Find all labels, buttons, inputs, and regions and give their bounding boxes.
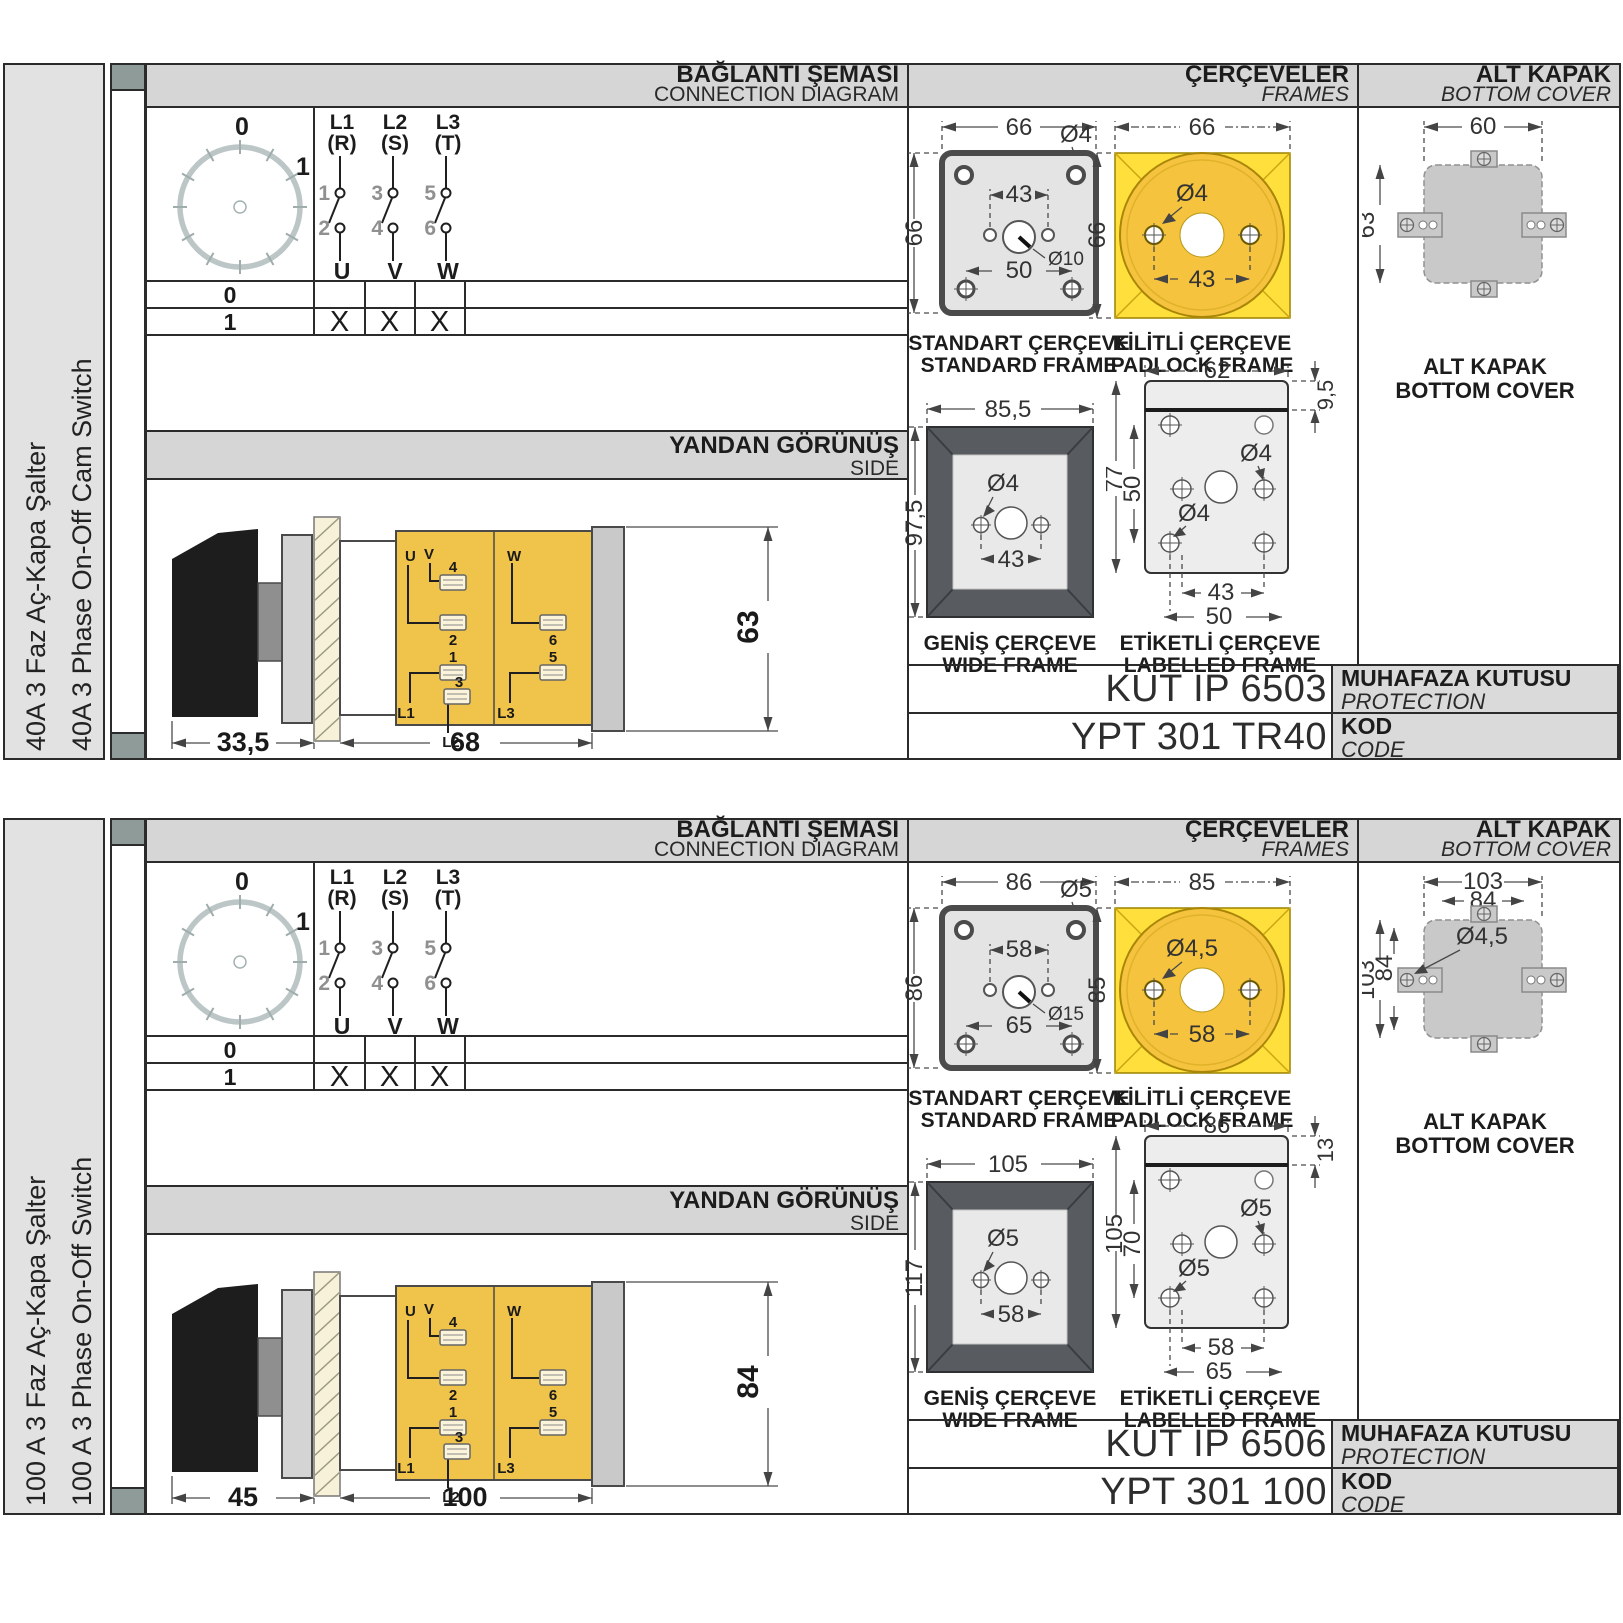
terminal-l3: L3: [497, 1460, 515, 1477]
header-connection-en: CONNECTION DIAGRAM: [147, 85, 899, 105]
terminal-1: 1: [449, 649, 457, 666]
code-label-en: CODE: [1341, 1493, 1617, 1516]
header-cover-tr: ALT KAPAK: [1359, 820, 1611, 840]
pole3-out: W: [437, 1013, 459, 1036]
wide-width: 85,5: [985, 396, 1032, 423]
labelled-frame-drawing: 62 9,5 77 50 Ø4 Ø4 43 50: [1106, 361, 1341, 629]
terminal-w: W: [507, 548, 522, 565]
wide-frame-label-tr: GENİŞ ÇERÇEVE: [924, 632, 1097, 655]
product-sidebar: 40A 3 Faz Aç-Kapa Şalter 40A 3 Phase On-…: [3, 63, 105, 760]
wide-hole-dia: Ø5: [987, 1225, 1019, 1252]
pole1-phase: (R): [327, 887, 356, 910]
std-pitch: 58: [1006, 936, 1033, 963]
code-label-box: KOD CODE: [1331, 1467, 1619, 1515]
cover-hole-dia: Ø4,5: [1456, 923, 1508, 950]
side-body-depth: 100: [442, 1482, 487, 1510]
terminal-w: W: [507, 1303, 522, 1320]
pole2-phase: (S): [381, 132, 409, 155]
labelled-lower-pitch: 50: [1206, 603, 1233, 629]
pole1-top-terminal: 1: [318, 937, 330, 960]
side-height-value: 84: [732, 1365, 765, 1399]
bottom-cover-label-en: BOTTOM COVER: [1395, 1133, 1574, 1158]
terminal-l1: L1: [397, 705, 415, 722]
terminal-2: 2: [449, 632, 457, 649]
padlock-pitch: 43: [1189, 266, 1216, 293]
pole3-out: W: [437, 258, 459, 281]
terminal-6: 6: [549, 1387, 557, 1404]
terminal-4: 4: [449, 1314, 458, 1331]
header-frames-en: FRAMES: [909, 840, 1349, 860]
labelled-pitch: 58: [1208, 1334, 1235, 1361]
table-row1-mark2: X: [365, 1061, 414, 1094]
bottom-cover-label-tr: ALT KAPAK: [1423, 354, 1547, 379]
table-row1-mark2: X: [365, 306, 414, 339]
header-cover-en: BOTTOM COVER: [1359, 85, 1611, 105]
wide-pitch: 58: [998, 1301, 1025, 1328]
padlock-hole-dia: Ø4: [1176, 180, 1208, 207]
labelled-lower-pitch: 65: [1206, 1358, 1233, 1384]
padlock-frame-drawing: 85 85 Ø4,5 58: [1085, 868, 1320, 1120]
std-width: 86: [1006, 869, 1033, 896]
cover-inner-height-dim: 84: [1371, 928, 1399, 1030]
pole3-top-terminal: 5: [424, 182, 436, 205]
padlock-width: 66: [1189, 114, 1216, 141]
table-row0-pos: 0: [147, 282, 313, 309]
terminal-l1: L1: [397, 1460, 415, 1477]
padlock-pitch: 58: [1189, 1021, 1216, 1048]
enclosure-label-tr: MUHAFAZA KUTUSU: [1341, 1422, 1617, 1445]
dial-pos-0: 0: [235, 115, 249, 141]
pole3-phase: (T): [435, 887, 462, 910]
padlock-frame-label-tr: KİLİTLİ ÇERÇEVE: [1113, 1087, 1292, 1110]
side-front-depth: 45: [228, 1482, 258, 1510]
terminal-1: 1: [449, 1404, 457, 1421]
std-pitch: 43: [1006, 181, 1033, 208]
product-code: YPT 301 100: [909, 1471, 1327, 1514]
side-view-header-tr: YANDAN GÖRÜNÜŞ: [147, 434, 899, 457]
enclosure-code: KUT IP 6506: [909, 1423, 1327, 1466]
std-center-dia: Ø15: [1048, 1004, 1084, 1025]
pole3-line: L3: [436, 868, 461, 889]
labelled-frame-label-tr: ETİKETLİ ÇERÇEVE: [1120, 632, 1321, 655]
header-divider: [147, 106, 1619, 108]
pole2-line: L2: [383, 868, 408, 889]
bottom-cover-label: ALT KAPAK BOTTOM COVER: [1355, 1110, 1615, 1158]
side-view-drawing: U V 4 2 1 3 L1 L2 W 6 5 L3 84: [158, 1240, 818, 1510]
terminal-6: 6: [549, 632, 557, 649]
pole2-bottom-terminal: 4: [371, 217, 383, 240]
terminal-3: 3: [455, 674, 463, 691]
header-connection-tr: BAĞLANTI ŞEMASI: [147, 820, 899, 840]
terminal-v: V: [424, 1301, 434, 1318]
labelled-strip-height: 9,5: [1313, 380, 1338, 411]
std-lower-pitch: 50: [1006, 257, 1033, 284]
pole2-out: V: [387, 1013, 403, 1036]
side-height-value: 63: [732, 610, 765, 643]
cover-outer-width-dim: 60: [1424, 113, 1542, 140]
table-row1-pos: 1: [147, 309, 313, 336]
wide-frame-drawing: 85,5 97,5 Ø4 43: [905, 395, 1115, 633]
terminal-l3: L3: [497, 705, 515, 722]
std-center-dia: Ø10: [1048, 249, 1084, 270]
dial-pos-0: 0: [235, 870, 249, 896]
std-width: 66: [1006, 114, 1033, 141]
dial-pos-1: 1: [296, 153, 310, 181]
code-label-box: KOD CODE: [1331, 712, 1619, 760]
header-connection: BAĞLANTI ŞEMASI CONNECTION DIAGRAM: [147, 820, 907, 861]
cover-inner-height: 84: [1371, 955, 1398, 982]
pole3-bottom-terminal: 6: [424, 972, 436, 995]
terminal-5: 5: [549, 649, 557, 666]
pole2-phase: (S): [381, 887, 409, 910]
terminal-v: V: [424, 546, 434, 563]
table-row1-mark1: X: [315, 306, 364, 339]
side-view-drawing: U V 4 2 1 3 L1 L2 W 6 5 L3 63: [158, 485, 818, 755]
pole2-top-terminal: 3: [371, 182, 383, 205]
side-view-header: YANDAN GÖRÜNÜŞ SIDE: [147, 1185, 907, 1235]
binding-strip-square-bottom: [110, 732, 146, 760]
dial-divider: [313, 863, 315, 1091]
pole2-out: V: [387, 258, 403, 281]
product-title-en: 40A 3 Phase On-Off Cam Switch: [67, 358, 98, 751]
pole1-bottom-terminal: 2: [318, 217, 330, 240]
wide-height: 97,5: [905, 500, 928, 547]
header-divider: [147, 861, 1619, 863]
std-height: 86: [901, 975, 928, 1002]
labelled-hole-dia-a: Ø4: [1240, 440, 1272, 467]
pole3-bottom-terminal: 6: [424, 217, 436, 240]
pole2-top-terminal: 3: [371, 937, 383, 960]
enclosure-label-box: MUHAFAZA KUTUSU PROTECTION ENCLOSURE: [1331, 1419, 1619, 1469]
side-body-depth: 68: [450, 727, 480, 755]
padlock-height: 66: [1085, 222, 1111, 249]
labelled-strip-height: 13: [1313, 1138, 1338, 1162]
wide-frame-label-tr: GENİŞ ÇERÇEVE: [924, 1387, 1097, 1410]
terminal-u: U: [405, 548, 416, 565]
bottom-cover-label: ALT KAPAK BOTTOM COVER: [1355, 355, 1615, 403]
handle-silhouette: [172, 529, 258, 717]
padlock-width: 85: [1189, 869, 1216, 896]
header-connection-tr: BAĞLANTI ŞEMASI: [147, 65, 899, 85]
table-vline-3: [464, 1035, 466, 1091]
terminal-4: 4: [449, 559, 458, 576]
product-title-en: 100 A 3 Phase On-Off Switch: [67, 1157, 98, 1506]
labelled-frame-drawing: 86 13 105 70 Ø5 Ø5 58 65: [1106, 1116, 1341, 1384]
pole1-bottom-terminal: 2: [318, 972, 330, 995]
switch-dial-diagram: 0 1: [158, 115, 330, 283]
pole3-phase: (T): [435, 132, 462, 155]
pole2-bottom-terminal: 4: [371, 972, 383, 995]
bottom-cover-drawing: 60 63: [1362, 113, 1608, 351]
product-title-tr: 40A 3 Faz Aç-Kapa Şalter: [21, 442, 52, 751]
wide-width: 105: [988, 1151, 1028, 1178]
side-bottom-dims: 45 100: [172, 1476, 592, 1510]
side-height-dim: 84: [626, 1282, 778, 1486]
labelled-inner-height: 70: [1119, 1231, 1146, 1258]
pole1-line: L1: [330, 113, 355, 134]
padlock-height: 85: [1085, 977, 1111, 1004]
labelled-frame-label-tr: ETİKETLİ ÇERÇEVE: [1120, 1387, 1321, 1410]
pole1-out: U: [334, 1013, 351, 1036]
table-row0-pos: 0: [147, 1037, 313, 1064]
labelled-hole-dia-b: Ø5: [1178, 1255, 1210, 1282]
side-bottom-dims: 33,5 68: [172, 721, 592, 755]
binding-strip: [110, 818, 146, 1515]
header-frames-en: FRAMES: [909, 85, 1349, 105]
terminal-5: 5: [549, 1404, 557, 1421]
cover-outer-height: 63: [1362, 212, 1380, 239]
header-cover: ALT KAPAK BOTTOM COVER: [1359, 65, 1619, 106]
section-40a-switch: 40A 3 Faz Aç-Kapa Şalter 40A 3 Phase On-…: [0, 55, 1623, 770]
wide-hole-dia: Ø4: [987, 470, 1019, 497]
code-label-tr: KOD: [1341, 715, 1617, 738]
switch-dial-diagram: 0 1: [158, 870, 330, 1038]
table-vline-3: [464, 280, 466, 336]
product-code: YPT 301 TR40: [909, 716, 1327, 759]
side-front-depth: 33,5: [217, 727, 270, 755]
table-row1-pos: 1: [147, 1064, 313, 1091]
pole3-line: L3: [436, 113, 461, 134]
padlock-frame-label-tr: KİLİTLİ ÇERÇEVE: [1113, 332, 1292, 355]
binding-strip-square-top: [110, 818, 146, 846]
pole1-top-terminal: 1: [318, 182, 330, 205]
table-row1-mark3: X: [415, 1061, 464, 1094]
wide-pitch: 43: [998, 546, 1025, 573]
binding-strip-square-bottom: [110, 1487, 146, 1515]
labelled-hole-dia-b: Ø4: [1178, 500, 1210, 527]
binding-strip: [110, 63, 146, 760]
side-height-dim: 63: [626, 527, 778, 731]
terminal-3: 3: [455, 1429, 463, 1446]
dial-divider: [313, 108, 315, 336]
code-label-tr: KOD: [1341, 1470, 1617, 1493]
cover-outer-height-dim: 63: [1362, 165, 1385, 283]
cover-outer-width: 60: [1470, 113, 1497, 140]
labelled-inner-height: 50: [1119, 476, 1146, 503]
side-view-header: YANDAN GÖRÜNÜŞ SIDE: [147, 430, 907, 480]
pole1-line: L1: [330, 868, 355, 889]
binding-strip-square-top: [110, 63, 146, 91]
side-view-header-en: SIDE: [147, 457, 899, 480]
table-row1-mark1: X: [315, 1061, 364, 1094]
pole2-line: L2: [383, 113, 408, 134]
section-100a-switch: 100 A 3 Faz Aç-Kapa Şalter 100 A 3 Phase…: [0, 810, 1623, 1525]
pole1-out: U: [334, 258, 351, 281]
side-view-header-en: SIDE: [147, 1212, 899, 1235]
terminal-u: U: [405, 1303, 416, 1320]
enclosure-label-box: MUHAFAZA KUTUSU PROTECTION ENCLOSURE: [1331, 664, 1619, 714]
header-frames: ÇERÇEVELER FRAMES: [909, 820, 1357, 861]
header-cover-tr: ALT KAPAK: [1359, 65, 1611, 85]
table-row1-mark3: X: [415, 306, 464, 339]
header-cover-en: BOTTOM COVER: [1359, 840, 1611, 860]
bottom-cover-label-tr: ALT KAPAK: [1423, 1109, 1547, 1134]
enclosure-label-tr: MUHAFAZA KUTUSU: [1341, 667, 1617, 690]
header-connection-en: CONNECTION DIAGRAM: [147, 840, 899, 860]
handle-silhouette: [172, 1284, 258, 1472]
side-view-header-tr: YANDAN GÖRÜNÜŞ: [147, 1189, 899, 1212]
std-lower-pitch: 65: [1006, 1012, 1033, 1039]
terminal-2: 2: [449, 1387, 457, 1404]
wide-height: 117: [905, 1259, 928, 1297]
pole-contacts-diagram: L1 (R) 1 2 U L2 (S) 3 4 V L3 (T) 5 6 W: [316, 113, 488, 281]
header-frames: ÇERÇEVELER FRAMES: [909, 65, 1357, 106]
header-cover: ALT KAPAK BOTTOM COVER: [1359, 820, 1619, 861]
code-label-en: CODE: [1341, 738, 1617, 761]
header-connection: BAĞLANTI ŞEMASI CONNECTION DIAGRAM: [147, 65, 907, 106]
pole3-top-terminal: 5: [424, 937, 436, 960]
header-frames-tr: ÇERÇEVELER: [909, 820, 1349, 840]
pole-contacts-diagram: L1 (R) 1 2 U L2 (S) 3 4 V L3 (T) 5 6 W: [316, 868, 488, 1036]
bottom-cover-label-en: BOTTOM COVER: [1395, 378, 1574, 403]
product-title-tr: 100 A 3 Faz Aç-Kapa Şalter: [21, 1176, 52, 1506]
std-height: 66: [901, 220, 928, 247]
wide-frame-drawing: 105 117 Ø5 58: [905, 1150, 1115, 1388]
pole1-phase: (R): [327, 132, 356, 155]
labelled-hole-dia-a: Ø5: [1240, 1195, 1272, 1222]
enclosure-code: KUT IP 6503: [909, 668, 1327, 711]
product-sidebar: 100 A 3 Faz Aç-Kapa Şalter 100 A 3 Phase…: [3, 818, 105, 1515]
bottom-cover-drawing: 103 84 103 84 Ø4,5: [1362, 868, 1608, 1106]
labelled-pitch: 43: [1208, 579, 1235, 606]
dial-pos-1: 1: [296, 908, 310, 936]
header-frames-tr: ÇERÇEVELER: [909, 65, 1349, 85]
padlock-frame-drawing: 66 66 Ø4 43: [1085, 113, 1320, 365]
padlock-hole-dia: Ø4,5: [1166, 935, 1218, 962]
